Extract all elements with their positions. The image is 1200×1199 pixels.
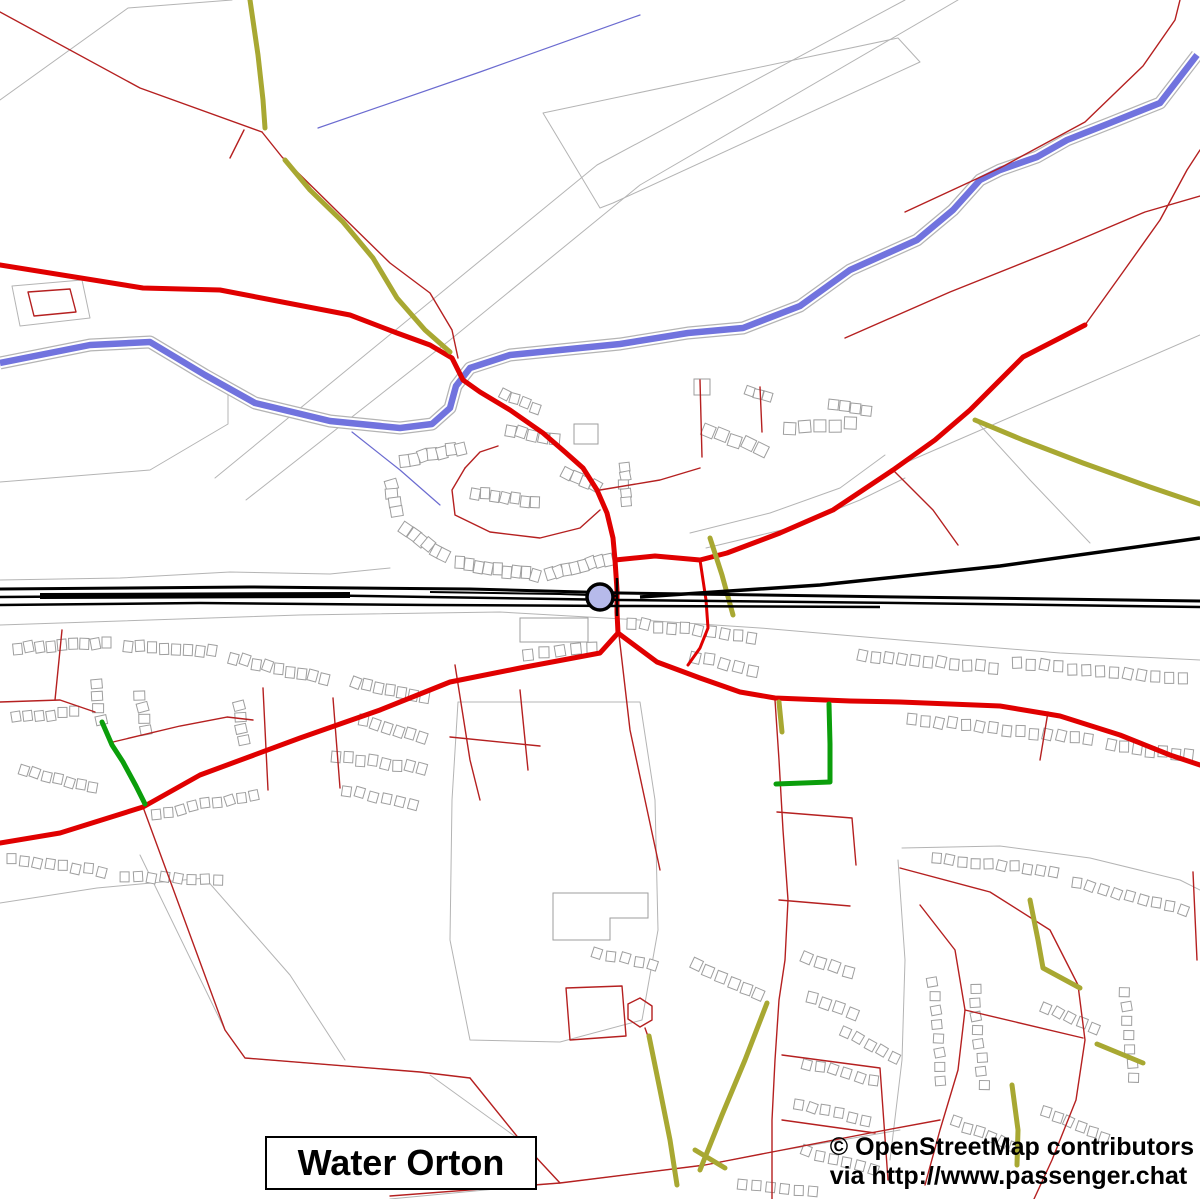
building bbox=[58, 860, 67, 870]
building bbox=[930, 992, 940, 1001]
building bbox=[972, 1025, 982, 1034]
road-minor bbox=[845, 196, 1200, 338]
building bbox=[57, 639, 67, 651]
building bbox=[944, 854, 955, 866]
building bbox=[762, 391, 773, 402]
building bbox=[159, 643, 168, 654]
building bbox=[350, 676, 362, 690]
building bbox=[907, 713, 917, 725]
building bbox=[591, 947, 603, 959]
building bbox=[1088, 1022, 1100, 1035]
building bbox=[164, 807, 174, 818]
building bbox=[1002, 725, 1012, 737]
building bbox=[239, 653, 251, 666]
footpath-olive bbox=[975, 420, 1200, 504]
building bbox=[1063, 1011, 1076, 1024]
building bbox=[963, 660, 972, 671]
building bbox=[1026, 659, 1035, 670]
building bbox=[123, 641, 133, 653]
building bbox=[32, 857, 43, 869]
building bbox=[520, 496, 530, 508]
building bbox=[701, 964, 714, 978]
road-minor bbox=[465, 446, 498, 468]
building bbox=[41, 771, 52, 783]
building bbox=[135, 640, 145, 652]
boundary-line bbox=[215, 0, 905, 478]
boundary-line bbox=[450, 702, 658, 1042]
building bbox=[480, 488, 489, 499]
building bbox=[529, 402, 541, 414]
building bbox=[393, 760, 402, 771]
building bbox=[519, 396, 531, 409]
building bbox=[921, 716, 931, 728]
building bbox=[146, 872, 157, 883]
building bbox=[828, 399, 839, 410]
building bbox=[747, 665, 759, 678]
building bbox=[1109, 667, 1119, 678]
boundary-line bbox=[140, 855, 470, 1078]
building bbox=[235, 712, 247, 722]
building bbox=[207, 644, 218, 656]
building bbox=[237, 793, 247, 804]
building bbox=[1072, 877, 1082, 888]
building bbox=[1095, 666, 1104, 677]
building bbox=[381, 722, 393, 735]
railway-line bbox=[0, 603, 880, 607]
map-viewport: Water Orton © OpenStreetMap contributors… bbox=[0, 0, 1200, 1199]
building bbox=[714, 427, 730, 443]
map-title-box: Water Orton bbox=[265, 1136, 537, 1190]
building bbox=[64, 777, 76, 789]
building bbox=[136, 701, 149, 713]
building bbox=[1136, 669, 1147, 682]
boundary-line bbox=[0, 0, 232, 100]
building bbox=[91, 691, 102, 701]
road-medium bbox=[688, 560, 708, 665]
boundary-line bbox=[907, 335, 1200, 462]
building bbox=[930, 1005, 941, 1016]
building bbox=[1151, 671, 1160, 682]
building bbox=[627, 618, 636, 629]
building bbox=[1084, 880, 1096, 893]
footpath-green bbox=[776, 704, 830, 784]
building bbox=[988, 721, 998, 733]
building bbox=[1029, 728, 1039, 740]
building bbox=[7, 854, 16, 864]
building bbox=[235, 723, 248, 734]
building bbox=[950, 1115, 962, 1127]
building bbox=[285, 667, 295, 679]
building bbox=[404, 727, 416, 740]
building bbox=[1120, 741, 1129, 752]
building bbox=[490, 490, 501, 502]
building bbox=[1106, 739, 1117, 752]
building bbox=[34, 710, 44, 721]
building bbox=[133, 871, 143, 882]
building bbox=[96, 866, 107, 878]
building bbox=[530, 497, 539, 508]
building bbox=[634, 957, 644, 968]
building bbox=[947, 716, 958, 728]
building bbox=[369, 718, 381, 731]
road-minor bbox=[1085, 150, 1200, 325]
building bbox=[692, 624, 703, 637]
building bbox=[120, 872, 129, 882]
building bbox=[356, 755, 366, 767]
building bbox=[251, 659, 262, 671]
building bbox=[464, 558, 474, 571]
building bbox=[936, 655, 947, 668]
building bbox=[482, 562, 493, 575]
building-large bbox=[553, 893, 648, 940]
map-canvas bbox=[0, 0, 1200, 1199]
building bbox=[815, 1150, 826, 1161]
building bbox=[949, 659, 959, 671]
road-major bbox=[615, 325, 1085, 560]
building bbox=[888, 1051, 900, 1064]
building bbox=[876, 1044, 889, 1057]
river-line bbox=[0, 55, 1197, 428]
building bbox=[228, 653, 240, 666]
map-title: Water Orton bbox=[298, 1142, 505, 1184]
road-minor bbox=[777, 812, 856, 865]
building bbox=[102, 637, 111, 648]
footpath-olive bbox=[1097, 1044, 1143, 1063]
building bbox=[380, 758, 391, 771]
building bbox=[839, 400, 850, 411]
building bbox=[840, 1067, 852, 1079]
building bbox=[793, 1099, 804, 1110]
building bbox=[846, 1007, 859, 1021]
building bbox=[23, 640, 34, 653]
building bbox=[815, 1061, 825, 1072]
building bbox=[828, 959, 841, 973]
footpath-olive bbox=[700, 1003, 767, 1170]
building bbox=[539, 647, 549, 658]
road-minor bbox=[28, 289, 76, 316]
building bbox=[844, 417, 856, 429]
building bbox=[1178, 904, 1190, 917]
building bbox=[932, 853, 942, 864]
road-minor bbox=[893, 470, 958, 545]
building-large bbox=[574, 424, 598, 444]
building bbox=[606, 951, 616, 962]
boundary-line bbox=[0, 568, 390, 580]
building bbox=[832, 1001, 845, 1015]
building bbox=[84, 863, 94, 874]
building bbox=[214, 875, 223, 885]
building bbox=[926, 977, 937, 988]
building bbox=[510, 492, 520, 504]
building bbox=[766, 1182, 776, 1193]
footpath-olive bbox=[649, 1036, 677, 1185]
building bbox=[1124, 890, 1135, 902]
building bbox=[331, 751, 341, 763]
building bbox=[139, 714, 150, 723]
building bbox=[195, 645, 205, 657]
building bbox=[860, 1115, 871, 1127]
building bbox=[753, 442, 769, 458]
building bbox=[690, 957, 704, 971]
building bbox=[1039, 658, 1050, 670]
building bbox=[407, 799, 418, 811]
building bbox=[187, 874, 196, 884]
building bbox=[680, 622, 689, 633]
footpath-green bbox=[102, 722, 145, 804]
building bbox=[931, 1020, 942, 1030]
building bbox=[988, 663, 998, 675]
building bbox=[70, 863, 81, 875]
building bbox=[647, 959, 659, 971]
building bbox=[76, 779, 87, 790]
building bbox=[58, 707, 67, 717]
building bbox=[307, 669, 319, 682]
building bbox=[1138, 894, 1149, 906]
building bbox=[973, 1039, 984, 1049]
building bbox=[727, 434, 742, 449]
building bbox=[502, 566, 512, 579]
building bbox=[794, 1185, 803, 1195]
building bbox=[779, 1183, 789, 1194]
road-minor bbox=[0, 700, 95, 712]
building bbox=[984, 859, 993, 869]
building bbox=[19, 856, 29, 867]
building bbox=[971, 859, 980, 869]
road-minor bbox=[333, 698, 340, 788]
building bbox=[1124, 1031, 1134, 1040]
building bbox=[752, 1180, 762, 1191]
building bbox=[847, 1112, 858, 1124]
building bbox=[861, 405, 872, 416]
building bbox=[667, 623, 677, 635]
attribution-url: via http://www.passenger.chat bbox=[830, 1162, 1194, 1191]
building bbox=[134, 691, 145, 700]
drain-line bbox=[318, 15, 640, 128]
building bbox=[974, 720, 985, 733]
building bbox=[69, 638, 78, 649]
building bbox=[852, 1031, 865, 1044]
building bbox=[368, 791, 379, 803]
building bbox=[1010, 861, 1019, 871]
building bbox=[45, 858, 55, 869]
building bbox=[361, 678, 372, 691]
map-attribution: © OpenStreetMap contributors via http://… bbox=[830, 1133, 1194, 1191]
building bbox=[839, 1026, 851, 1039]
building bbox=[962, 719, 971, 730]
building bbox=[819, 997, 832, 1011]
boundary-line bbox=[706, 478, 905, 548]
building bbox=[1125, 1045, 1135, 1054]
road-minor bbox=[143, 807, 470, 1078]
building bbox=[800, 951, 814, 965]
building bbox=[319, 673, 330, 686]
building bbox=[1022, 864, 1033, 875]
building bbox=[1121, 1001, 1132, 1012]
building bbox=[871, 652, 881, 664]
road-minor bbox=[600, 468, 700, 490]
road-minor bbox=[1193, 872, 1197, 960]
building bbox=[46, 710, 56, 721]
building bbox=[200, 874, 209, 884]
building bbox=[521, 566, 531, 578]
building bbox=[1056, 729, 1067, 742]
building bbox=[958, 857, 968, 868]
boundary-line bbox=[12, 280, 90, 326]
building-large bbox=[520, 618, 588, 642]
building bbox=[1052, 1006, 1065, 1019]
building bbox=[1068, 664, 1077, 675]
building bbox=[896, 653, 907, 666]
building bbox=[173, 873, 184, 884]
building bbox=[1016, 725, 1025, 736]
riverbank-line bbox=[0, 55, 1197, 428]
building bbox=[618, 480, 628, 489]
building bbox=[621, 497, 632, 507]
building bbox=[827, 1063, 839, 1075]
road-minor bbox=[779, 900, 850, 906]
building bbox=[806, 991, 818, 1004]
building bbox=[740, 982, 753, 996]
road-minor bbox=[263, 688, 268, 790]
building bbox=[715, 970, 728, 984]
building bbox=[1119, 988, 1129, 997]
building bbox=[801, 1059, 812, 1071]
building bbox=[390, 505, 403, 517]
building bbox=[728, 977, 741, 991]
building bbox=[87, 782, 98, 793]
building bbox=[1048, 866, 1059, 878]
building bbox=[704, 653, 715, 665]
building bbox=[857, 649, 868, 662]
railway-line bbox=[40, 595, 350, 596]
building bbox=[701, 423, 717, 439]
road-minor bbox=[113, 717, 253, 742]
road-minor bbox=[450, 737, 540, 746]
building bbox=[224, 794, 236, 806]
building bbox=[499, 491, 511, 504]
riverbank-gap bbox=[0, 55, 1197, 428]
road-minor bbox=[230, 130, 244, 158]
footpath-olive bbox=[250, 0, 265, 128]
building bbox=[741, 436, 757, 452]
building bbox=[933, 1034, 943, 1044]
building bbox=[570, 643, 581, 655]
building bbox=[1054, 661, 1063, 672]
building bbox=[935, 1076, 946, 1086]
building bbox=[46, 641, 56, 653]
building bbox=[1164, 900, 1175, 911]
attribution-copyright: © OpenStreetMap contributors bbox=[830, 1133, 1194, 1162]
building bbox=[975, 659, 985, 671]
building bbox=[834, 1107, 844, 1118]
building bbox=[864, 1039, 877, 1052]
building bbox=[639, 618, 650, 631]
building bbox=[1040, 1002, 1052, 1015]
building bbox=[970, 998, 981, 1008]
building bbox=[511, 565, 521, 578]
building bbox=[1122, 1016, 1132, 1025]
building bbox=[18, 764, 30, 776]
building bbox=[737, 1179, 747, 1190]
building bbox=[1070, 732, 1079, 743]
building bbox=[385, 684, 395, 696]
building bbox=[13, 643, 23, 655]
building bbox=[393, 725, 405, 738]
building bbox=[396, 687, 407, 699]
building bbox=[455, 556, 465, 568]
building bbox=[262, 659, 274, 672]
building bbox=[717, 657, 730, 670]
building bbox=[1178, 673, 1187, 684]
building bbox=[808, 1186, 818, 1197]
building bbox=[751, 987, 765, 1001]
building bbox=[854, 1072, 866, 1084]
building bbox=[1075, 1121, 1087, 1133]
building bbox=[654, 622, 663, 633]
building bbox=[1122, 667, 1133, 680]
building bbox=[493, 563, 502, 575]
building bbox=[814, 956, 827, 969]
building bbox=[798, 420, 811, 433]
building bbox=[151, 809, 161, 820]
building bbox=[90, 638, 101, 650]
boundary-line bbox=[890, 860, 905, 1160]
road-minor bbox=[455, 665, 480, 800]
building bbox=[719, 628, 730, 641]
building bbox=[381, 793, 392, 805]
building bbox=[910, 654, 920, 666]
building bbox=[470, 488, 481, 500]
building bbox=[935, 1062, 945, 1071]
building bbox=[187, 800, 198, 812]
building bbox=[29, 766, 41, 779]
building bbox=[248, 790, 259, 802]
building bbox=[23, 710, 33, 721]
building bbox=[297, 668, 307, 680]
building bbox=[1151, 897, 1161, 908]
building bbox=[147, 642, 156, 653]
building bbox=[53, 773, 64, 785]
building bbox=[1111, 887, 1123, 900]
building bbox=[979, 1081, 989, 1090]
footpath-olive bbox=[779, 702, 782, 732]
building bbox=[977, 1053, 988, 1063]
road-minor bbox=[619, 635, 660, 870]
building bbox=[732, 660, 744, 673]
building bbox=[1012, 657, 1021, 668]
building bbox=[373, 682, 384, 695]
building bbox=[344, 751, 354, 762]
building bbox=[814, 420, 826, 432]
building bbox=[1098, 884, 1110, 896]
road-minor bbox=[772, 700, 788, 1199]
building bbox=[996, 860, 1007, 872]
building bbox=[509, 392, 520, 404]
building bbox=[806, 1102, 818, 1115]
building bbox=[91, 679, 103, 689]
building bbox=[923, 656, 933, 668]
building bbox=[175, 804, 186, 816]
building bbox=[416, 762, 428, 775]
boundary-line bbox=[205, 878, 345, 1060]
building bbox=[1128, 1073, 1138, 1082]
building bbox=[454, 442, 467, 456]
building bbox=[1035, 865, 1046, 877]
building bbox=[746, 632, 757, 644]
building bbox=[274, 663, 284, 675]
building bbox=[233, 700, 246, 711]
building bbox=[820, 1104, 830, 1115]
